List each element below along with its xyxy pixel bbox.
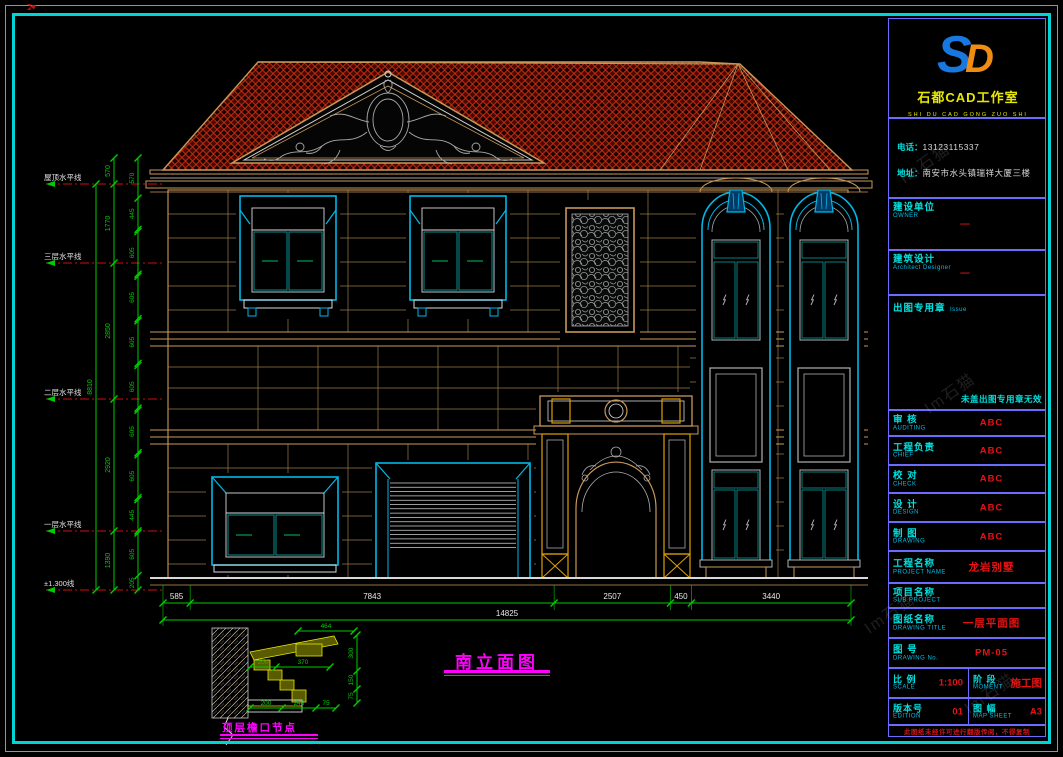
svg-text:445: 445 xyxy=(129,509,136,520)
owner-box: 建设单位 OWNER — xyxy=(888,198,1046,250)
bay-window xyxy=(206,473,342,575)
project-name-value: 龙岩别墅 xyxy=(941,560,1042,575)
drawing-no-value: PM-05 xyxy=(941,648,1042,659)
svg-text:300: 300 xyxy=(348,647,355,658)
window-2f-right xyxy=(406,193,510,319)
svg-text:2507: 2507 xyxy=(603,592,621,601)
svg-text:屋顶水平线: 屋顶水平线 xyxy=(44,172,82,182)
svg-text:570: 570 xyxy=(105,165,112,177)
svg-text:±1.300线: ±1.300线 xyxy=(44,578,75,588)
disclaimer-box: 此图纸未经许可进行翻版传阅，不得复制 xyxy=(888,725,1046,737)
row-project-name: 工程名称PROJECT NAME 龙岩别墅 xyxy=(888,551,1046,583)
edition-cell: 版本号EDITION 01 xyxy=(889,699,968,724)
logo-box: S D 石都CAD工作室 SHI DU CAD GONG ZUO SHI xyxy=(888,18,1046,118)
detail-underline xyxy=(220,734,318,736)
designer-label: 建筑设计 xyxy=(893,255,951,265)
row-edition-sheet: 版本号EDITION 01 图 幅MAP SHEET A3 xyxy=(888,698,1046,725)
title-block: S D 石都CAD工作室 SHI DU CAD GONG ZUO SHI 电话：… xyxy=(888,16,1046,736)
row-label-en: CHIEF xyxy=(893,452,935,458)
svg-text:1770: 1770 xyxy=(105,216,112,232)
svg-text:2850: 2850 xyxy=(105,323,112,339)
row-value: ABC xyxy=(941,502,1042,513)
svg-text:1390: 1390 xyxy=(105,553,112,569)
svg-text:245: 245 xyxy=(294,700,305,707)
sd-logo: S D xyxy=(889,25,1047,83)
row-label-en: DRAWING No. xyxy=(893,655,938,661)
stage-cell: 阶 段MOMENT 施工图 xyxy=(968,669,1047,697)
edition-label: 版本号 xyxy=(893,704,923,713)
title-underline-thin xyxy=(444,675,550,676)
sheet-cell: 图 幅MAP SHEET A3 xyxy=(968,699,1047,724)
contact-box: 电话：13123115337 地址：南安市水头镇瑞祥大厦三楼 xyxy=(888,118,1046,198)
svg-text:2920: 2920 xyxy=(105,457,112,473)
svg-text:7843: 7843 xyxy=(363,592,381,601)
owner-value: — xyxy=(889,219,1042,230)
row-label-en: PROJECT NAME xyxy=(893,569,946,575)
owner-label: 建设单位 xyxy=(893,203,935,213)
drawing-title-value: 一层平面图 xyxy=(941,616,1042,631)
scale-label-en: SCALE xyxy=(893,685,917,691)
svg-text:450: 450 xyxy=(674,592,688,601)
cornice xyxy=(146,170,872,192)
garage-door xyxy=(372,460,534,578)
row-label: 项目名称 xyxy=(893,588,941,598)
row-label: 工程负责 xyxy=(893,443,935,453)
svg-text:200: 200 xyxy=(261,700,272,707)
svg-text:445: 445 xyxy=(129,208,136,219)
svg-text:205: 205 xyxy=(129,577,136,588)
row-value: ABC xyxy=(941,474,1042,485)
row-label: 图 号 xyxy=(893,645,938,655)
row-label: 图纸名称 xyxy=(893,615,946,625)
cad-sheet: 58578432507450344014825屋顶水平线三层水平线二层水平线一层… xyxy=(0,0,1063,757)
row-audit: 审 核AUDITING ABC xyxy=(888,410,1046,436)
title-underline xyxy=(444,670,550,673)
scale-label: 比 例 xyxy=(893,676,917,685)
sheet-value: A3 xyxy=(1030,706,1042,717)
svg-text:14825: 14825 xyxy=(496,609,519,618)
row-value: ABC xyxy=(941,418,1042,429)
disclaimer-text: 此图纸未经许可进行翻版传阅，不得复制 xyxy=(889,726,1045,736)
logo-letter-d: D xyxy=(965,37,994,82)
phone-number: 13123115337 xyxy=(923,142,980,152)
row-label-en: CHECK xyxy=(893,481,918,487)
row-drawing-no: 图 号DRAWING No. PM-05 xyxy=(888,638,1046,668)
stage-label-en: MOMENT xyxy=(973,685,1003,691)
svg-text:3440: 3440 xyxy=(762,592,780,601)
svg-text:三层水平线: 三层水平线 xyxy=(44,251,82,261)
svg-text:8810: 8810 xyxy=(87,379,94,395)
svg-text:585: 585 xyxy=(170,592,184,601)
svg-text:150: 150 xyxy=(348,674,355,685)
svg-text:一层水平线: 一层水平线 xyxy=(44,519,82,529)
row-label: 工程名称 xyxy=(893,559,946,569)
svg-text:二层水平线: 二层水平线 xyxy=(44,387,82,397)
svg-text:605: 605 xyxy=(129,247,136,258)
row-sub-project: 项目名称SUB PROJECT xyxy=(888,583,1046,608)
row-label: 制 图 xyxy=(893,529,925,539)
row-label: 设 计 xyxy=(893,500,919,510)
sheet-label-en: MAP SHEET xyxy=(973,713,1012,719)
row-label-en: AUDITING xyxy=(893,425,926,431)
detail-underline-thin xyxy=(220,738,318,739)
carved-panel xyxy=(560,200,640,340)
stage-value: 施工图 xyxy=(1011,676,1043,691)
stage-label: 阶 段 xyxy=(973,676,1003,685)
row-label: 审 核 xyxy=(893,415,926,425)
svg-text:605: 605 xyxy=(129,381,136,392)
svg-text:370: 370 xyxy=(298,659,309,666)
phone-label: 电话： xyxy=(897,142,923,152)
seal-note: 未盖出图专用章无效 xyxy=(961,393,1042,405)
svg-text:605: 605 xyxy=(129,292,136,303)
row-label-en: DESIGN xyxy=(893,509,919,515)
row-label: 校 对 xyxy=(893,471,918,481)
seal-label-en: Issue xyxy=(950,307,967,313)
row-drawing-title: 图纸名称DRAWING TITLE 一层平面图 xyxy=(888,608,1046,638)
arched-bay xyxy=(784,190,864,578)
address-label: 地址： xyxy=(897,168,923,178)
sheet-label: 图 幅 xyxy=(973,704,1012,713)
row-design: 设 计DESIGN ABC xyxy=(888,493,1046,522)
window-2f-left xyxy=(236,193,340,319)
svg-text:605: 605 xyxy=(129,336,136,347)
row-chief: 工程负责CHIEF ABC xyxy=(888,436,1046,465)
edition-label-en: EDITION xyxy=(893,713,923,719)
ground-line xyxy=(150,578,868,585)
row-value: ABC xyxy=(941,445,1042,456)
scale-value: 1:100 xyxy=(939,678,963,689)
svg-text:75: 75 xyxy=(348,692,355,700)
svg-text:200: 200 xyxy=(258,659,269,666)
svg-text:605: 605 xyxy=(129,426,136,437)
svg-text:570: 570 xyxy=(129,172,136,183)
svg-text:75: 75 xyxy=(322,700,330,707)
row-scale-stage: 比 例SCALE 1:100 阶 段MOMENT 施工图 xyxy=(888,668,1046,698)
edition-value: 01 xyxy=(952,706,963,717)
svg-text:605: 605 xyxy=(129,470,136,481)
row-label-en: SUB PROJECT xyxy=(893,597,941,603)
designer-value: — xyxy=(889,267,1042,278)
scale-cell: 比 例SCALE 1:100 xyxy=(889,669,968,697)
svg-text:605: 605 xyxy=(129,549,136,560)
address: 南安市水头镇瑞祥大厦三楼 xyxy=(923,168,1031,178)
seal-label: 出图专用章 xyxy=(893,303,946,314)
row-check: 校 对CHECK ABC xyxy=(888,465,1046,493)
company-name: 石都CAD工作室 xyxy=(889,87,1047,106)
row-label-en: DRAWING xyxy=(893,538,925,544)
row-label-en: DRAWING TITLE xyxy=(893,625,946,631)
seal-box: 出图专用章 Issue 未盖出图专用章无效 xyxy=(888,295,1046,410)
detail-title: 顶层檐口节点 xyxy=(222,720,297,735)
entrance-portal xyxy=(534,392,698,578)
svg-text:464: 464 xyxy=(321,623,332,630)
row-value: ABC xyxy=(941,531,1042,542)
arched-bays xyxy=(696,190,864,578)
arched-bay xyxy=(696,190,776,578)
designer-box: 建筑设计 Architect Designer — xyxy=(888,250,1046,295)
row-drawing: 制 图DRAWING ABC xyxy=(888,522,1046,551)
